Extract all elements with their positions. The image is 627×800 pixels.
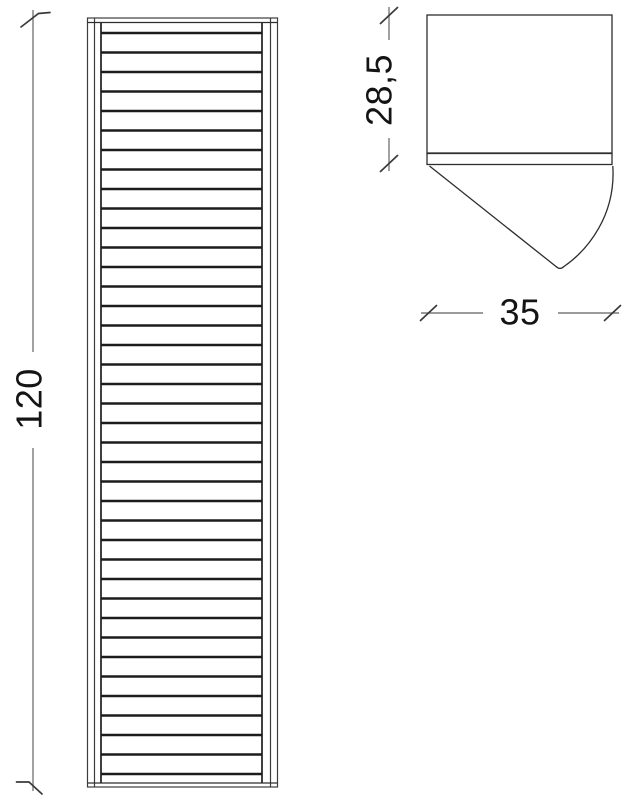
dimension-tick-icon [21,13,50,28]
height-dimension-label: 120 [9,368,50,430]
drawing-canvas: 120 28,5 35 [0,0,627,800]
dimension-tick-icon [17,782,43,794]
depth-dimension: 28,5 [359,7,400,172]
height-dimension: 120 [9,10,51,794]
side-view-curved-shell [430,166,614,268]
technical-drawing: 120 28,5 35 [0,0,627,800]
side-view [427,15,613,268]
depth-dimension-label: 28,5 [359,54,400,126]
side-view-band [427,154,612,165]
width-dimension-label: 35 [499,292,540,333]
slat-lines [101,33,262,774]
front-view [88,18,278,787]
side-view-body [427,15,612,153]
width-dimension: 35 [421,292,621,333]
